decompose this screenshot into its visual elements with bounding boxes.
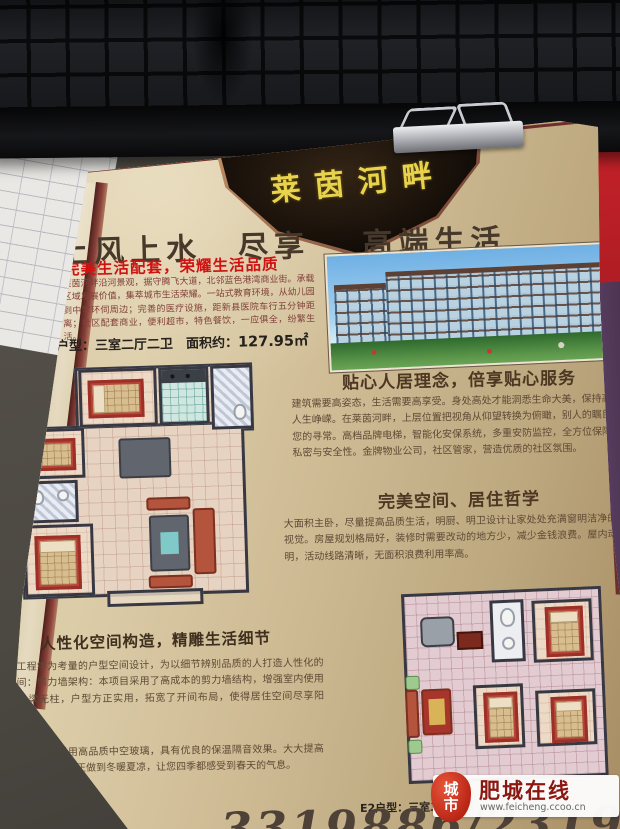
toilet xyxy=(31,490,44,505)
clip-body xyxy=(393,121,524,154)
bed xyxy=(34,535,82,590)
bedroom-2 xyxy=(473,683,526,749)
watermark-site-url: www.feicheng.ccoo.cn xyxy=(480,802,586,813)
section-title-service: 贴心人居理念，倍享贴心服务 xyxy=(300,363,618,395)
pillow xyxy=(556,701,582,712)
pillow xyxy=(550,611,578,623)
bed xyxy=(27,438,76,471)
e1-rooms: 三室二厅二卫 xyxy=(95,337,173,354)
basin xyxy=(57,489,69,501)
bathroom-2 xyxy=(22,480,79,524)
building-rendering xyxy=(324,241,620,372)
basin xyxy=(502,637,516,651)
bedroom-3 xyxy=(23,523,95,597)
plant xyxy=(408,740,423,755)
spacer xyxy=(173,337,186,352)
coffee-table xyxy=(149,514,191,571)
bedroom-2 xyxy=(20,428,86,480)
logo-char-top: 城 xyxy=(431,781,471,798)
keyboard-keys xyxy=(0,0,620,111)
watermark-site-name: 肥城在线 xyxy=(479,775,571,805)
kitchen xyxy=(158,366,210,426)
toilet xyxy=(500,608,516,628)
sofa xyxy=(405,690,420,739)
watermark-city-logo: 城 市 xyxy=(431,772,471,822)
plant xyxy=(405,676,420,691)
e1-floorplan xyxy=(16,362,262,621)
sofa-main xyxy=(193,508,217,575)
bedroom-1 xyxy=(531,598,594,662)
bed xyxy=(87,379,144,419)
pillow xyxy=(488,697,512,709)
pillow xyxy=(93,385,106,413)
dining-table xyxy=(118,437,171,479)
tea-set xyxy=(160,531,179,554)
section-title-detail: 人性化空间构造，精雕生活细节 xyxy=(40,624,352,654)
e1-spec-line: E1户型：三室二厅二卫 面积约：127.95㎡ xyxy=(38,329,309,356)
apartment-block-left xyxy=(334,283,389,347)
binder-clip xyxy=(392,101,524,158)
section-body-space: 大面积主卧，尽量提高品质生活，明厨、明卫设计让家处处充满窗明洁净的清新视觉。房屋… xyxy=(284,511,620,566)
cable-shadow xyxy=(192,0,253,103)
bathroom-1 xyxy=(210,364,254,429)
bed xyxy=(550,696,588,743)
living-table xyxy=(421,688,453,735)
e2-floorplan xyxy=(389,581,620,796)
mattress xyxy=(32,443,71,466)
desk-photo-scene: 莱茵河畔 上风上水 尽享 高端生活 完美生活配套，荣耀生活品质 莱茵河畔沿河景观… xyxy=(0,0,620,829)
sofa-top xyxy=(146,496,190,510)
bed xyxy=(483,691,519,742)
section-body-service: 建筑需要高姿态，生活需要高享受。身处高处才能洞悉生命大美，保持高尚方显人生峥嵘。… xyxy=(291,391,620,463)
logo-char-bottom: 市 xyxy=(431,797,471,814)
pillow xyxy=(39,540,75,553)
pillow xyxy=(32,444,43,466)
watermark: 城 市 肥城在线 www.feicheng.ccoo.cn xyxy=(433,775,619,817)
table-top xyxy=(429,699,446,725)
bedroom-1 xyxy=(78,367,158,427)
section-body-ecology: 环保节能：窗户采用高品质中空玻璃，具有优良的保温隔音效果。大大提高房间的保温性能… xyxy=(0,742,324,779)
bed xyxy=(545,606,585,658)
sofa-bottom xyxy=(149,574,193,588)
stove-counter xyxy=(161,369,205,383)
bathroom xyxy=(489,599,526,662)
e1-area-label: 面积约： xyxy=(186,336,238,352)
dining-table xyxy=(420,616,455,647)
toilet xyxy=(233,404,246,420)
console-table xyxy=(457,631,484,650)
e1-area-value: 127.95㎡ xyxy=(238,333,309,350)
balcony xyxy=(107,588,203,607)
section-title-space: 完美空间、居住哲学 xyxy=(300,483,618,515)
bedroom-3 xyxy=(535,688,597,746)
section-body-detail: 以人体工程学为考量的户型空间设计，为以细节辨别品质的人打造人性化的居家空间：剪力… xyxy=(0,656,324,726)
